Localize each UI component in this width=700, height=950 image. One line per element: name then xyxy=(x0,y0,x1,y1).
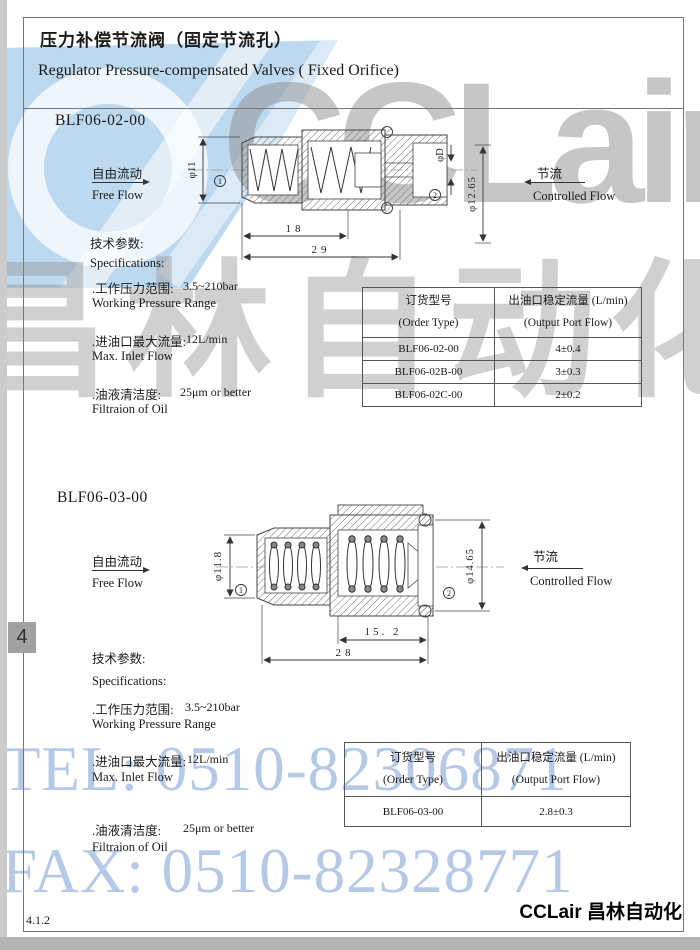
dim-len-inner: 18 xyxy=(286,223,305,235)
valve-cross-section-drawing-2: φ11.8 1 2 φ14.65 15. 2 28 xyxy=(210,498,510,673)
section2-free-flow-arrow xyxy=(92,570,144,571)
spec-label-en: Working Pressure Range xyxy=(92,296,216,311)
body-top-step xyxy=(338,505,423,515)
table-row: BLF06-02B-00 3±0.3 xyxy=(363,361,642,384)
order-table-1: 订货型号 (Order Type) 出油口稳定流量 (L/min) (Outpu… xyxy=(362,287,642,407)
port1-marker: 1 xyxy=(215,176,226,187)
scan-edge-left xyxy=(0,0,7,950)
table2-col2-header: 出油口稳定流量 (L/min) (Output Port Flow) xyxy=(482,743,631,797)
spec-label-cn: .油液清洁度: xyxy=(92,384,161,403)
section1-free-flow-cn: 自由流动 xyxy=(92,163,142,182)
port1-marker: 1 xyxy=(236,585,247,596)
scan-edge-bottom xyxy=(0,937,700,950)
svg-text:2: 2 xyxy=(447,589,451,598)
spec-label-en: Max. Inlet Flow xyxy=(92,770,173,785)
spec-label-en: Working Pressure Range xyxy=(92,717,216,732)
section1-controlled-flow-arrow xyxy=(530,182,585,183)
o-ring-top xyxy=(382,127,393,138)
valve-cross-section-drawing-1: φ11 1 2 φD φ12.65 18 29 xyxy=(185,115,505,273)
end-cap xyxy=(418,525,433,606)
dim-len-outer: 29 xyxy=(312,244,331,256)
svg-text:2: 2 xyxy=(433,191,437,200)
section2-specs-title-cn: 技术参数: xyxy=(92,648,145,667)
spec-label-en: Max. Inlet Flow xyxy=(92,349,173,364)
dim-len-inner: 15. 2 xyxy=(365,626,402,638)
spec-value: 25μm or better xyxy=(183,821,254,836)
o-ring-bottom xyxy=(382,203,393,214)
spec-value: 3.5~210bar xyxy=(183,279,238,294)
dim-dia-right: φ14.65 xyxy=(465,548,476,584)
spec-label-cn: .油液清洁度: xyxy=(92,820,161,839)
svg-text:1: 1 xyxy=(239,586,243,595)
table-row: BLF06-03-00 2.8±0.3 xyxy=(345,797,631,827)
table-row: BLF06-02-00 4±0.4 xyxy=(363,338,642,361)
svg-text:1: 1 xyxy=(218,177,222,186)
spec-label-cn: .工作压力范围: xyxy=(92,278,174,297)
footer-section-code: 4.1.2 xyxy=(26,913,50,928)
table1-col2-header: 出油口稳定流量 (L/min) (Output Port Flow) xyxy=(495,288,642,338)
section1-model-label: BLF06-02-00 xyxy=(55,112,146,130)
section2-free-flow-en: Free Flow xyxy=(92,576,143,591)
section1-specs-title-en: Specifications: xyxy=(90,256,164,271)
section1-free-flow-arrow xyxy=(92,182,144,183)
section2-controlled-flow-en: Controlled Flow xyxy=(530,574,612,589)
o-ring-bottom xyxy=(419,605,431,617)
spec-label-cn: .进油口最大流量: xyxy=(92,751,186,770)
spec-value: 25μm or better xyxy=(180,385,251,400)
spec-label-cn: .进油口最大流量: xyxy=(92,331,186,350)
title-separator-line xyxy=(23,108,683,109)
spec-value: 3.5~210bar xyxy=(185,700,240,715)
section2-controlled-flow-arrow xyxy=(527,568,583,569)
order-table-2: 订货型号 (Order Type) 出油口稳定流量 (L/min) (Outpu… xyxy=(344,742,631,827)
dim-dia-orifice: φD xyxy=(435,148,446,162)
section1-free-flow-en: Free Flow xyxy=(92,188,143,203)
spec-label-en: Filtraion of Oil xyxy=(92,402,168,417)
dim-dia-left: φ11.8 xyxy=(212,551,224,581)
table-row: BLF06-02C-00 2±0.2 xyxy=(363,384,642,407)
spec-label-en: Filtraion of Oil xyxy=(92,840,168,855)
page-title-en: Regulator Pressure-compensated Valves ( … xyxy=(38,62,399,80)
page-number-tab: 4 xyxy=(8,622,36,653)
section2-free-flow-cn: 自由流动 xyxy=(92,551,142,570)
datasheet-page: CCLair 昌林自动化 TEL: 0510-82306871 FAX: 051… xyxy=(0,0,700,950)
dim-len-outer: 28 xyxy=(336,647,355,659)
section2-controlled-flow-cn: 节流 xyxy=(533,546,558,565)
footer-brand: CCLair 昌林自动化 xyxy=(519,897,682,924)
spec-label-cn: .工作压力范围: xyxy=(92,699,174,718)
section2-model-label: BLF06-03-00 xyxy=(57,489,148,507)
section1-controlled-flow-en: Controlled Flow xyxy=(533,189,615,204)
page-title-cn: 压力补偿节流阀（固定节流孔） xyxy=(40,26,292,51)
section1-specs-title-cn: 技术参数: xyxy=(90,233,143,252)
port2-marker: 2 xyxy=(444,588,455,599)
table2-col1-header: 订货型号 (Order Type) xyxy=(345,743,482,797)
section2-specs-title-en: Specifications: xyxy=(92,674,166,689)
dim-dia-left: φ11 xyxy=(186,162,198,179)
table1-col1-header: 订货型号 (Order Type) xyxy=(363,288,495,338)
dim-dia-right: φ12.65 xyxy=(467,176,478,212)
spec-value: 12L/min xyxy=(187,752,228,767)
piston xyxy=(355,153,381,187)
o-ring-top xyxy=(419,514,431,526)
section1-controlled-flow-cn: 节流 xyxy=(537,163,562,182)
spec-value: 12L/min xyxy=(186,332,227,347)
